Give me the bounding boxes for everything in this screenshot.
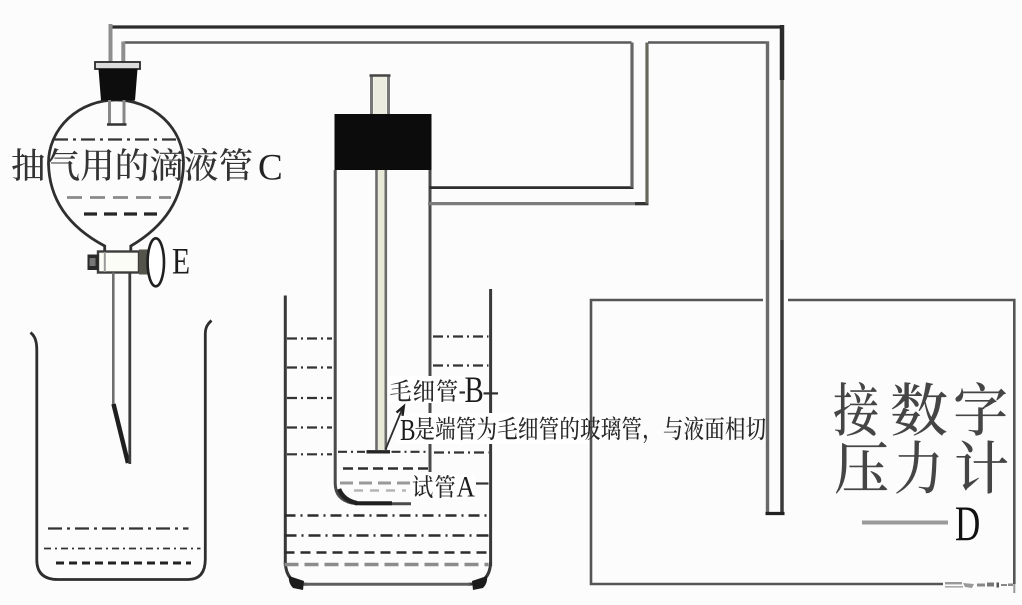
- svg-text:D: D: [955, 497, 980, 551]
- svg-text:B: B: [465, 370, 484, 411]
- svg-text:A: A: [457, 471, 475, 504]
- svg-text:B: B: [400, 413, 416, 447]
- svg-text:C: C: [258, 148, 283, 189]
- svg-text:E: E: [172, 241, 190, 282]
